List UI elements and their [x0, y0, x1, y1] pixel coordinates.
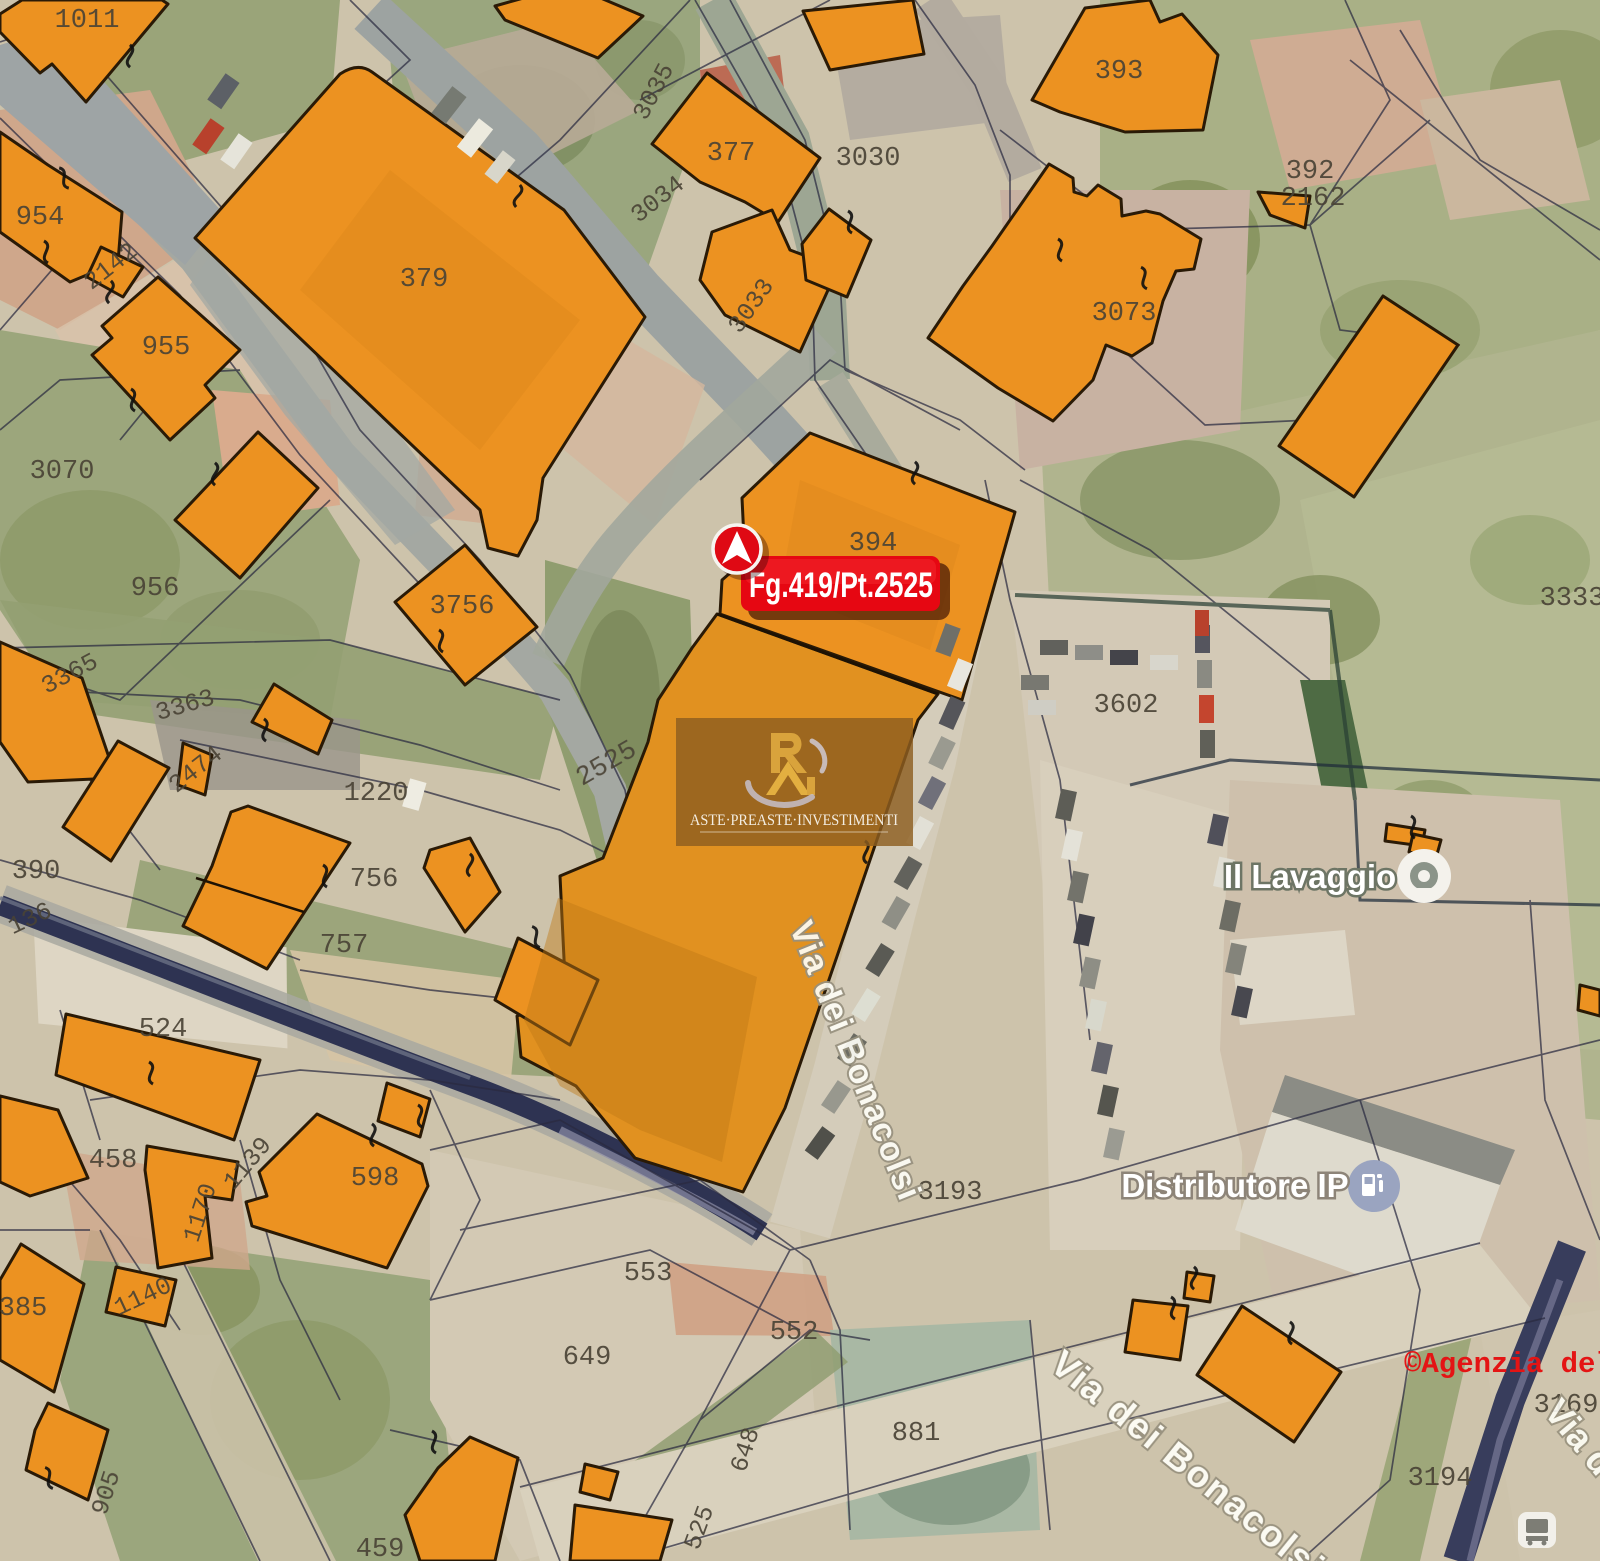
svg-text:598: 598: [351, 1164, 400, 1194]
svg-text:393: 393: [1095, 57, 1144, 87]
svg-text:3602: 3602: [1094, 691, 1159, 721]
svg-text:3030: 3030: [836, 144, 901, 174]
svg-text:955: 955: [142, 333, 191, 363]
svg-text:2162: 2162: [1281, 184, 1346, 214]
svg-text:385: 385: [0, 1294, 47, 1324]
svg-text:459: 459: [356, 1535, 405, 1561]
svg-text:757: 757: [320, 931, 369, 961]
svg-text:3333: 3333: [1540, 584, 1600, 614]
svg-text:©Agenzia del: ©Agenzia del: [1404, 1348, 1600, 1381]
svg-text:3756: 3756: [430, 592, 495, 622]
svg-text:756: 756: [350, 865, 399, 895]
svg-text:Il Lavaggio: Il Lavaggio: [1224, 858, 1396, 895]
svg-text:649: 649: [563, 1343, 612, 1373]
svg-text:392: 392: [1286, 157, 1335, 187]
svg-text:377: 377: [707, 139, 756, 169]
svg-text:524: 524: [139, 1015, 188, 1045]
svg-text:ASTE·PREASTE·INVESTIMENTI: ASTE·PREASTE·INVESTIMENTI: [690, 812, 898, 829]
svg-text:552: 552: [770, 1318, 819, 1348]
svg-text:1220: 1220: [344, 779, 409, 809]
svg-text:Fg.419/Pt.2525: Fg.419/Pt.2525: [749, 566, 933, 605]
svg-text:3070: 3070: [30, 457, 95, 487]
svg-text:1011: 1011: [55, 6, 120, 36]
svg-text:956: 956: [131, 574, 180, 604]
svg-text:553: 553: [624, 1259, 673, 1289]
svg-text:3193: 3193: [918, 1178, 983, 1208]
svg-text:Distributore IP: Distributore IP: [1121, 1167, 1348, 1204]
svg-text:458: 458: [89, 1146, 138, 1176]
svg-text:881: 881: [892, 1419, 941, 1449]
svg-text:379: 379: [400, 265, 449, 295]
svg-text:394: 394: [849, 529, 898, 559]
svg-text:3194: 3194: [1408, 1464, 1473, 1494]
svg-text:954: 954: [16, 203, 65, 233]
svg-text:3073: 3073: [1092, 299, 1157, 329]
svg-text:390: 390: [12, 857, 61, 887]
